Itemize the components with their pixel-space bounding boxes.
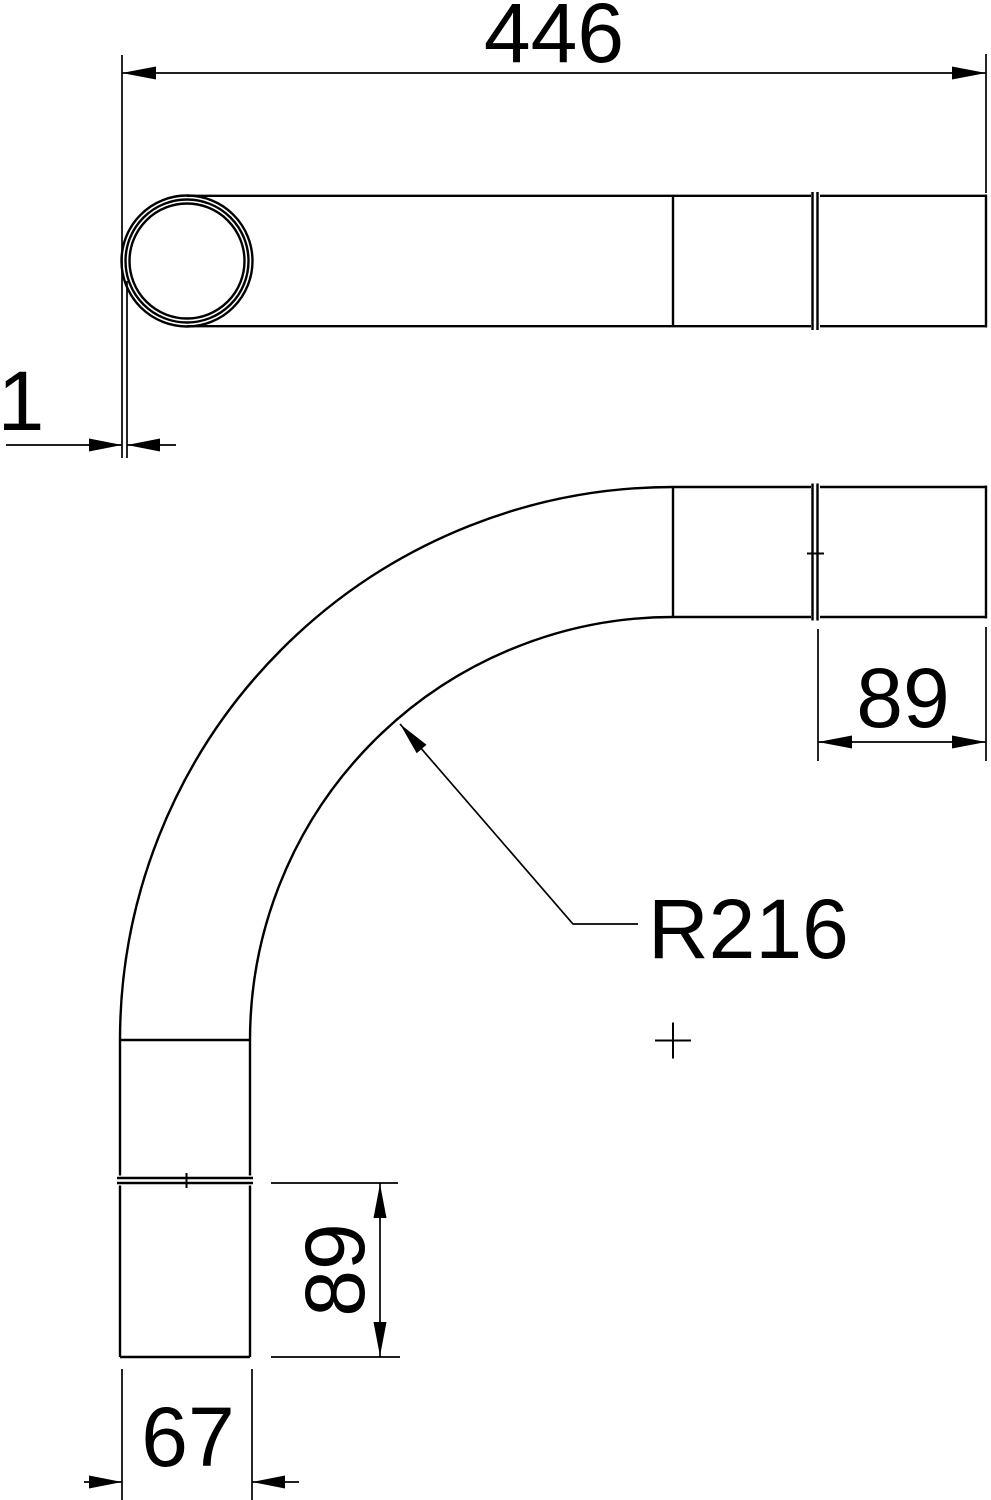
arrowhead-top-icon: [374, 1184, 387, 1218]
arrowhead-left-icon: [122, 67, 156, 80]
arrowhead-left-icon: [818, 736, 852, 749]
pipe-end-circle-inner: [130, 204, 245, 319]
dimension-width: 67: [84, 1369, 299, 1500]
dimension-bend-radius: R216: [400, 724, 849, 976]
dimension-value-socket-right: 89: [856, 651, 949, 745]
dimension-socket-bottom: 89: [271, 1183, 400, 1357]
leader-line: [400, 724, 638, 924]
dimension-end-offset: 1: [0, 281, 176, 458]
top-view: [122, 192, 987, 330]
arrowhead-bottom-icon: [374, 1322, 387, 1356]
conduit-bend-drawing: 446 1 89 R216 89: [0, 0, 991, 1500]
front-view-bend: [117, 484, 986, 1358]
dimension-value-width: 67: [141, 1390, 234, 1484]
arrowhead-left-icon: [89, 439, 122, 452]
dimension-overall-length: 446: [122, 0, 986, 458]
arrowhead-right-icon: [952, 67, 986, 80]
dimension-socket-right: 89: [818, 627, 986, 761]
bend-inner-arc: [250, 617, 673, 1040]
pipe-end-circle-middle: [126, 200, 249, 323]
center-mark-icon: [655, 1023, 691, 1059]
dimension-value-end-offset: 1: [0, 354, 44, 448]
dimension-value-socket-bottom: 89: [288, 1223, 382, 1316]
arrowhead-right-icon: [252, 1476, 285, 1489]
bend-outer-arc: [120, 487, 673, 1040]
arrowhead-left-icon: [89, 1476, 122, 1489]
technical-drawing-canvas: 446 1 89 R216 89: [0, 0, 991, 1500]
pipe-end-circle-outer: [122, 196, 253, 327]
arrowhead-right-icon: [952, 736, 986, 749]
arrowhead-right-icon: [127, 439, 160, 452]
dimension-value-overall-length: 446: [484, 0, 624, 80]
dimension-value-bend-radius: R216: [648, 882, 849, 976]
